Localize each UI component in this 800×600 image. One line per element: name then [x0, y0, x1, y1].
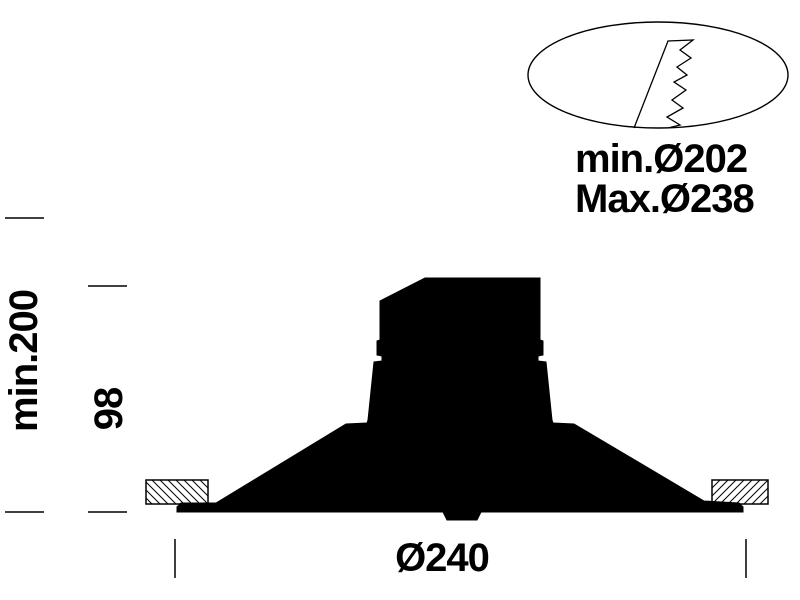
ceiling-section-right — [712, 480, 768, 504]
ceiling-section-left — [146, 480, 208, 504]
fixture-height-label: 98 — [88, 369, 130, 449]
drawing-svg — [0, 0, 800, 600]
fixture-silhouette-shape — [177, 278, 743, 520]
detail-callout-ellipse — [528, 22, 788, 128]
flange-diameter-label: Ø240 — [342, 537, 542, 579]
technical-drawing-canvas: min.Ø202 Max.Ø238 min.200 98 Ø240 — [0, 0, 800, 600]
cutout-max-diameter-label: Max.Ø238 — [575, 178, 754, 220]
cutout-min-diameter-label: min.Ø202 — [575, 138, 747, 180]
spring-clip-icon — [634, 40, 693, 128]
recess-depth-label: min.200 — [3, 281, 45, 441]
